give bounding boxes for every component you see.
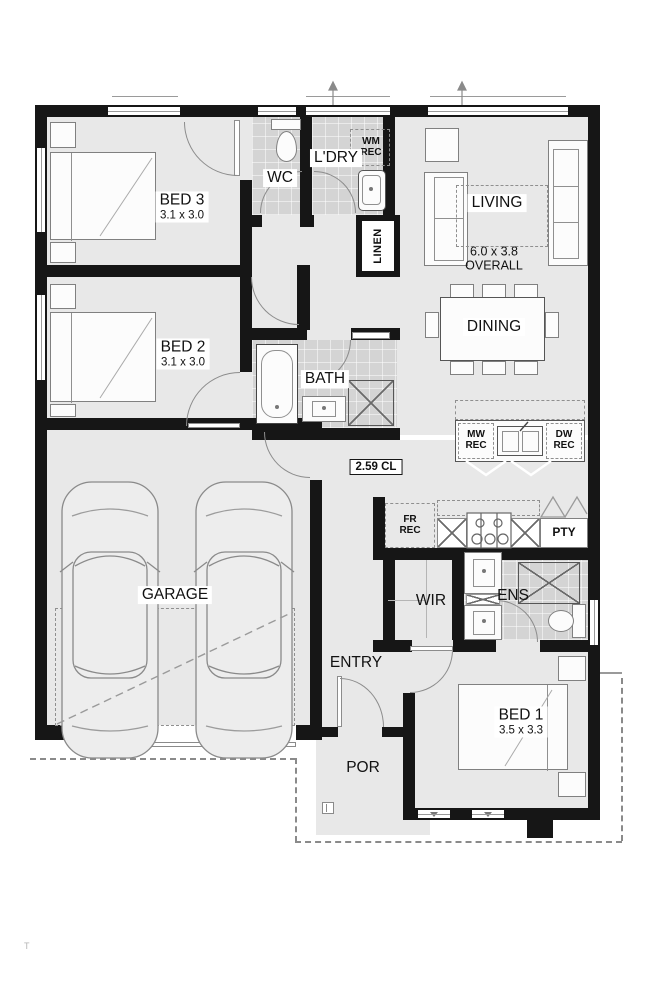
tap-dot (322, 406, 326, 410)
window-opening-mark (484, 812, 492, 817)
pantry-label: PTY (548, 526, 579, 540)
toilet-icon (271, 119, 301, 130)
boundary-line (30, 758, 296, 760)
wall (35, 105, 47, 148)
laundry-trough-icon (358, 170, 386, 211)
nightstand-icon (50, 242, 76, 263)
room-label-wir: WIR (412, 592, 450, 610)
pillow-line (71, 313, 72, 403)
room-label-living: LIVING (468, 194, 527, 212)
nightstand-icon (558, 656, 586, 681)
linen-label: LINEN (372, 228, 384, 264)
wall (35, 265, 252, 277)
cabinet-icon (510, 518, 540, 548)
cushion-split (553, 186, 579, 187)
fence-return-line (600, 672, 622, 674)
basin (473, 611, 495, 635)
bed1-dim: 3.5 x 3.3 (499, 724, 544, 737)
toilet-icon (276, 131, 297, 162)
island-overhead-cupboard (455, 400, 585, 420)
room-label-bed3: BED 3 3.1 x 3.0 (156, 191, 209, 222)
kitchen-sink-icon (497, 426, 543, 456)
window (428, 105, 568, 117)
chair-icon (545, 312, 559, 338)
basin (473, 559, 495, 587)
boundary-line (295, 758, 297, 842)
room-label-wc: WC (263, 169, 297, 187)
bed-icon (50, 312, 156, 402)
drain-dot (275, 405, 279, 409)
window (108, 105, 180, 117)
window (35, 148, 47, 232)
window (472, 808, 504, 820)
room-label-dining: DINING (463, 318, 525, 336)
wm-rec-label: WM REC (360, 137, 381, 159)
nightstand-icon (50, 122, 76, 148)
ensuite-vanity-icon (464, 605, 502, 640)
room-label-entry: ENTRY (326, 654, 386, 672)
chair-icon (450, 361, 474, 375)
room-label-por: POR (342, 759, 384, 777)
sink-bowl (522, 431, 539, 452)
towel-rail-icon (352, 332, 390, 339)
wall (180, 105, 258, 117)
dw-rec-label: DW REC (553, 430, 574, 452)
window-opening-mark (430, 812, 438, 817)
nightstand-icon (558, 772, 586, 797)
wall-pier (527, 818, 553, 838)
mw-rec-label: MW REC (465, 430, 486, 452)
tap-dot (369, 187, 373, 191)
room-label-ldry: L'DRY (310, 149, 362, 167)
chair-icon (450, 284, 474, 298)
boundary-line (621, 678, 623, 841)
bed1-name: BED 1 (499, 706, 544, 724)
wall (240, 180, 252, 277)
tap-dot (482, 619, 486, 623)
room-label-ens: ENS (493, 587, 533, 605)
window (588, 600, 600, 645)
wall (588, 445, 600, 600)
bed-icon (50, 152, 156, 240)
wall (296, 105, 306, 117)
floor-plan: WM REC LINEN MW REC DW REC (0, 0, 650, 1000)
eave-line (306, 96, 390, 97)
direction-arrow-icon (329, 82, 466, 105)
chair-icon (482, 361, 506, 375)
wall (453, 640, 496, 652)
room-label-garage: GARAGE (138, 586, 212, 604)
room-label-bed2: BED 2 3.1 x 3.0 (157, 338, 210, 369)
tap-dot (482, 569, 486, 573)
chair-icon (482, 284, 506, 298)
wall (452, 548, 464, 640)
wall (310, 480, 322, 737)
eave-line (112, 96, 178, 97)
garage-door-opening (75, 725, 296, 740)
chair-icon (514, 284, 538, 298)
wall (390, 105, 428, 117)
overhead-cupboard (437, 500, 540, 516)
boundary-line (295, 841, 622, 843)
nightstand-icon (50, 284, 76, 309)
room-label-bed1: BED 1 3.5 x 3.3 (495, 706, 548, 737)
pier-line (326, 804, 327, 812)
wall (403, 693, 415, 820)
wall (373, 640, 412, 652)
sink-bowl (502, 431, 519, 452)
eave-line (430, 96, 566, 97)
window (35, 295, 47, 380)
ceiling-height-label: 2.59 CL (350, 459, 403, 475)
wall (383, 548, 395, 640)
wall (450, 808, 472, 820)
chair-icon (425, 312, 439, 338)
bed3-name: BED 3 (160, 191, 205, 209)
wall (35, 380, 47, 740)
sofa-icon (548, 140, 588, 266)
bed3-dim: 3.1 x 3.0 (160, 209, 205, 222)
room-label-bath: BATH (301, 370, 349, 388)
toilet-icon (548, 610, 574, 632)
wall (588, 105, 600, 445)
side-table-icon (425, 128, 459, 162)
chair-icon (514, 361, 538, 375)
garage-door-panel (78, 742, 296, 747)
bath-vanity-icon (302, 396, 346, 422)
toilet-icon (572, 604, 586, 638)
window (258, 105, 296, 117)
fr-rec-label: FR REC (399, 515, 420, 537)
bed2-dim: 3.1 x 3.0 (161, 356, 206, 369)
nightstand-icon (50, 404, 76, 417)
wall (252, 215, 262, 227)
window (306, 105, 390, 117)
window (418, 808, 450, 820)
wall (240, 277, 252, 372)
bed2-name: BED 2 (161, 338, 206, 356)
shower-icon (348, 380, 394, 426)
cushion-split (553, 222, 579, 223)
wall (588, 645, 600, 820)
porch-pier (322, 802, 334, 814)
bathtub-icon (256, 344, 298, 424)
pillow-line (71, 153, 72, 241)
watermark-text: T (24, 941, 30, 951)
garage-setdown-outline (55, 608, 295, 726)
living-overall-dim: 6.0 x 3.8 OVERALL (461, 245, 527, 274)
cabinet-icon (437, 518, 467, 548)
wall (35, 232, 47, 295)
sofa-cushions (553, 149, 579, 259)
